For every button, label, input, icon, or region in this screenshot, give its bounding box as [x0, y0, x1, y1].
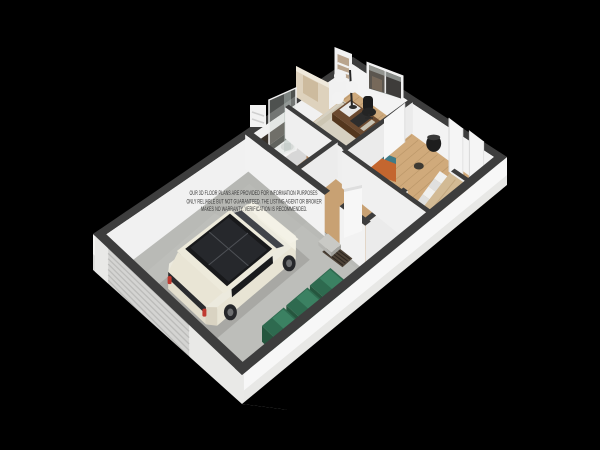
svg-text:ONLY RELIABLE BUT NOT GUARANTE: ONLY RELIABLE BUT NOT GUARANTEED. THE LI…	[186, 199, 321, 206]
svg-text:MAKES NO WARRANTY. VERIFICATIO: MAKES NO WARRANTY. VERIFICATION IS RECOM…	[201, 206, 307, 213]
svg-text:OUR 3D FLOOR PLANS ARE PROVIDE: OUR 3D FLOOR PLANS ARE PROVIDED FOR INFO…	[189, 190, 317, 197]
